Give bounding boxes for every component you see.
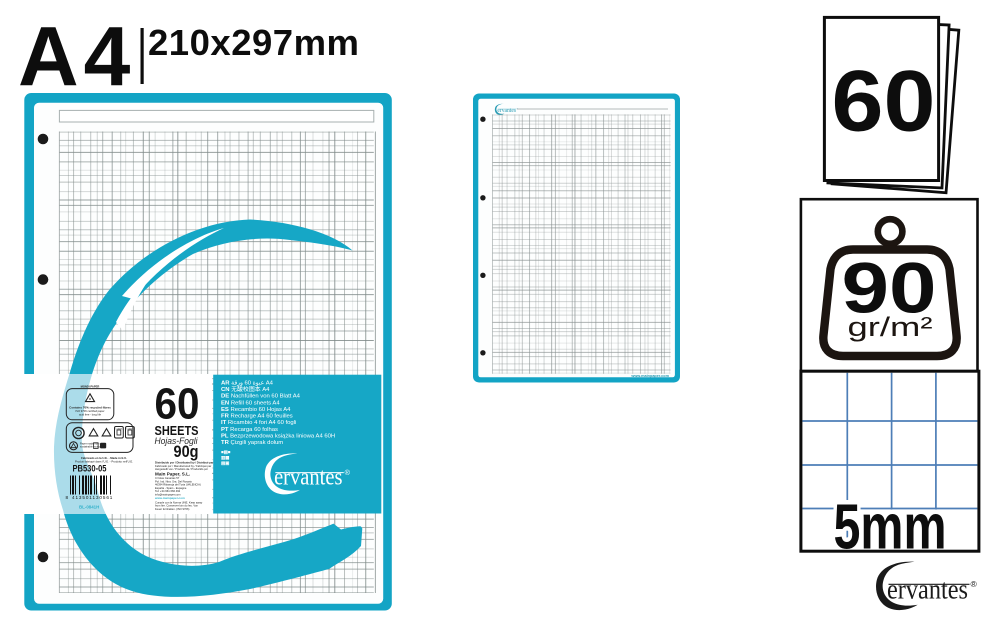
svg-text:gr/m²: gr/m² <box>848 312 933 342</box>
svg-text:210x297mm: 210x297mm <box>148 22 360 63</box>
svg-text:DE Nachfüllen von 60 Blatt A4: DE Nachfüllen von 60 Blatt A4 <box>221 394 301 400</box>
svg-text:PL Bezprzewodowa książka linio: PL Bezprzewodowa książka liniowa A4 60H <box>221 434 335 440</box>
svg-text:TR Çizgili yaprak dolum: TR Çizgili yaprak dolum <box>221 440 283 446</box>
svg-text:MONDI PAPER: MONDI PAPER <box>81 385 100 389</box>
svg-text:CLASS: CLASS <box>115 427 123 430</box>
svg-text:sustainable sources: sustainable sources <box>80 446 103 449</box>
svg-text:▥▦: ▥▦ <box>221 455 229 460</box>
svg-text:PT Recarga 60 folhas: PT Recarga 60 folhas <box>221 427 278 433</box>
svg-text:60: 60 <box>155 380 200 429</box>
svg-text:▤▣: ▤▣ <box>221 461 229 466</box>
svg-text:IT Ricambio 4 fori A4 60 fogli: IT Ricambio 4 fori A4 60 fogli <box>221 420 296 426</box>
svg-text:CLASS: CLASS <box>126 427 134 430</box>
svg-text:PB530-05: PB530-05 <box>73 464 108 475</box>
svg-text:EN Refill 60 sheets A4: EN Refill 60 sheets A4 <box>221 400 280 406</box>
svg-text:CN 无酸校图本 A4: CN 无酸校图本 A4 <box>221 385 270 393</box>
svg-text:♻: ♻ <box>89 397 92 401</box>
svg-text:FR Recharge A4 60 feuilles: FR Recharge A4 60 feuilles <box>221 414 293 420</box>
svg-text:AR عبوة 60 ورقة A4: AR عبوة 60 ورقة A4 <box>221 381 274 387</box>
svg-text:413501: 413501 <box>72 495 93 500</box>
svg-text:130561: 130561 <box>93 495 114 500</box>
svg-text:www.mainpaper.com: www.mainpaper.com <box>154 496 185 500</box>
svg-text:A4: A4 <box>18 10 135 104</box>
svg-text:■▤■: ■▤■ <box>221 450 231 455</box>
svg-text:BL-0841H: BL-0841H <box>79 505 99 510</box>
svg-text:Contains 70% recycled fibres: Contains 70% recycled fibres <box>69 406 111 410</box>
svg-text:acid free - long life: acid free - long life <box>79 412 101 416</box>
svg-text:www.mainpaper.com: www.mainpaper.com <box>630 374 669 378</box>
svg-text:60: 60 <box>832 54 936 150</box>
svg-text:90g: 90g <box>174 443 199 461</box>
svg-text:ES Recambio 60 Hojas A4: ES Recambio 60 Hojas A4 <box>221 407 291 413</box>
svg-text:Feuer fernhalten. (ISO 9706): Feuer fernhalten. (ISO 9706) <box>155 507 189 511</box>
svg-text:Main Paper, S.L.: Main Paper, S.L. <box>155 471 190 476</box>
svg-text:8: 8 <box>66 495 69 500</box>
